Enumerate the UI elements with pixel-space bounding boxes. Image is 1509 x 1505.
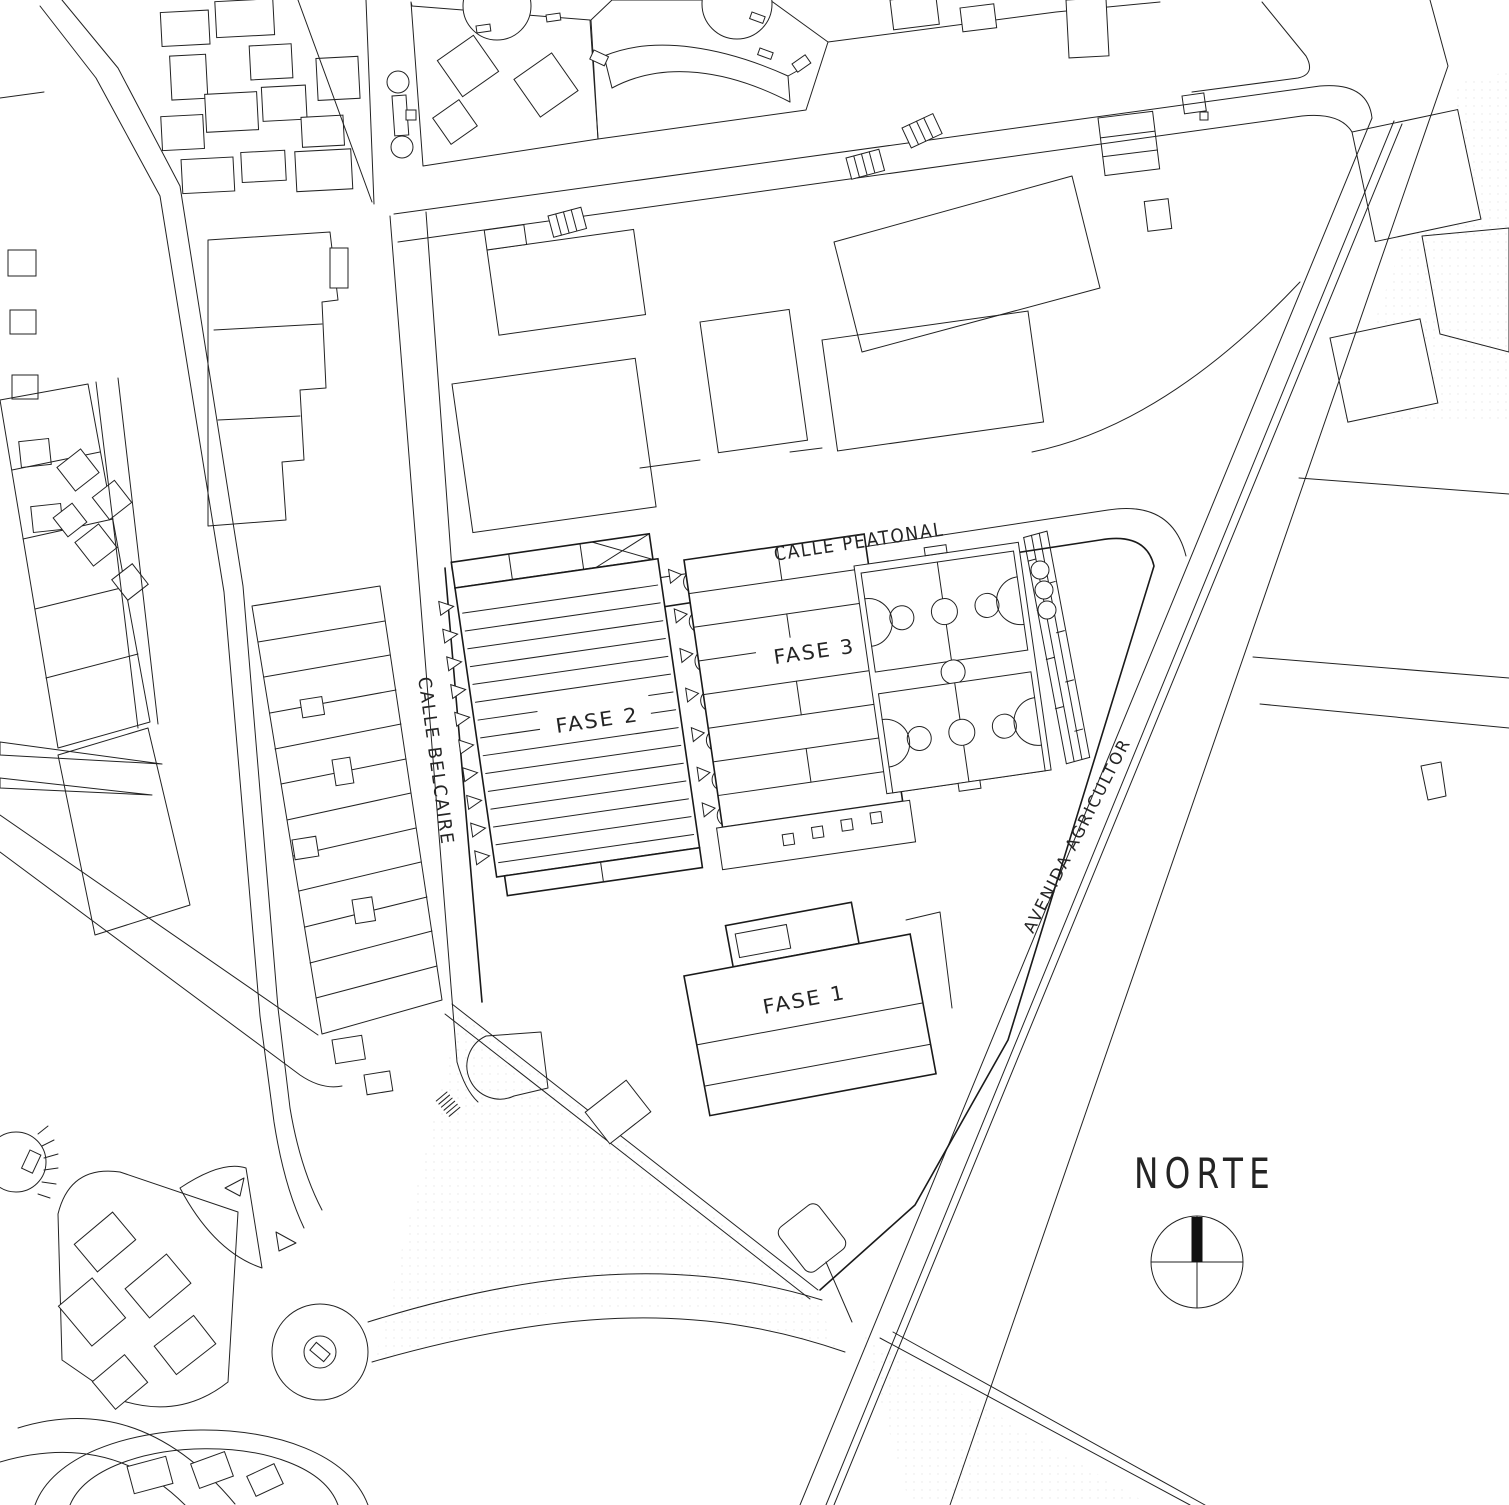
street-label-calle-belcaire: CALLE BELCAIRE <box>413 676 457 847</box>
site-plan-canvas: FASE 2 FASE 3 <box>0 0 1509 1505</box>
site-plan-map: FASE 2 FASE 3 <box>0 0 1509 1505</box>
road-calle-belcaire <box>390 212 478 1116</box>
stadium-structure <box>0 1126 58 1198</box>
north-compass-icon: NORTE <box>1134 1149 1276 1308</box>
fase-1-building: FASE 1 <box>676 893 936 1116</box>
basketball-courts <box>853 529 1092 802</box>
terraced-block <box>252 586 442 1095</box>
compass-needle <box>1192 1217 1203 1262</box>
roundabout <box>272 1304 368 1400</box>
compass-label: NORTE <box>1134 1149 1276 1198</box>
tree-cluster <box>1031 561 1056 619</box>
